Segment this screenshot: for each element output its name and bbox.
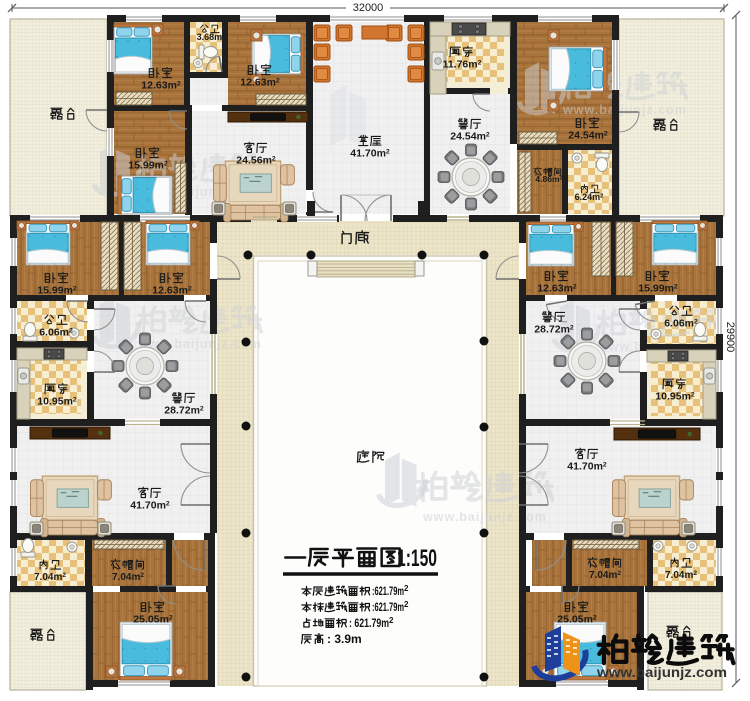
svg-text:24.56m2: 24.56m2 (236, 154, 276, 166)
svg-text:: 3.9m: : 3.9m (327, 632, 362, 646)
svg-text:24.54m2: 24.54m2 (568, 129, 608, 141)
svg-text:6.24m2: 6.24m2 (575, 192, 605, 202)
svg-text:3.68m2: 3.68m2 (197, 32, 227, 42)
svg-text:6.06m2: 6.06m2 (664, 317, 698, 329)
svg-text:15.99m2: 15.99m2 (37, 284, 77, 296)
svg-text:41.70m2: 41.70m2 (130, 499, 170, 511)
svg-text:7.04m2: 7.04m2 (665, 570, 697, 581)
svg-text:2: 2 (404, 584, 409, 593)
svg-text:12.63m2: 12.63m2 (240, 76, 280, 88)
svg-text:2: 2 (389, 616, 394, 625)
svg-text:4.86m2: 4.86m2 (535, 174, 562, 184)
svg-text:32000: 32000 (353, 2, 384, 14)
svg-text:25.05m2: 25.05m2 (557, 613, 597, 625)
svg-text:41.70m2: 41.70m2 (350, 147, 390, 159)
svg-text:7.04m2: 7.04m2 (34, 572, 66, 583)
svg-text:www.baijunjz.com: www.baijunjz.com (422, 510, 547, 524)
svg-text:28.72m2: 28.72m2 (534, 323, 574, 335)
svg-text:7.04m2: 7.04m2 (589, 570, 621, 581)
svg-text:12.63m2: 12.63m2 (152, 284, 192, 296)
svg-text:2: 2 (404, 600, 409, 609)
svg-text:12.63m2: 12.63m2 (141, 79, 181, 91)
svg-text:15.99m2: 15.99m2 (128, 159, 168, 171)
svg-text::621.79m: :621.79m (372, 584, 404, 598)
svg-text::621.79m: :621.79m (372, 600, 404, 614)
svg-text:29900: 29900 (724, 322, 736, 353)
svg-text:12.63m2: 12.63m2 (537, 282, 577, 294)
svg-text:15.99m2: 15.99m2 (638, 282, 678, 294)
svg-text:24.54m2: 24.54m2 (450, 130, 490, 142)
svg-text:www.baijunjz.com: www.baijunjz.com (562, 103, 687, 117)
svg-text:6.06m2: 6.06m2 (39, 326, 73, 338)
svg-text:7.04m2: 7.04m2 (112, 572, 144, 583)
svg-text:10.95m2: 10.95m2 (37, 395, 77, 407)
svg-text:: 621.79m: : 621.79m (349, 616, 389, 630)
svg-text:11.76m2: 11.76m2 (443, 58, 482, 70)
svg-text:25.05m2: 25.05m2 (133, 613, 173, 625)
svg-text:1:150: 1:150 (397, 545, 437, 572)
svg-text:10.95m2: 10.95m2 (655, 390, 695, 402)
svg-text:www.baijunjz.com: www.baijunjz.com (596, 665, 727, 680)
svg-text:28.72m2: 28.72m2 (164, 404, 204, 416)
svg-text:41.70m2: 41.70m2 (567, 460, 607, 472)
